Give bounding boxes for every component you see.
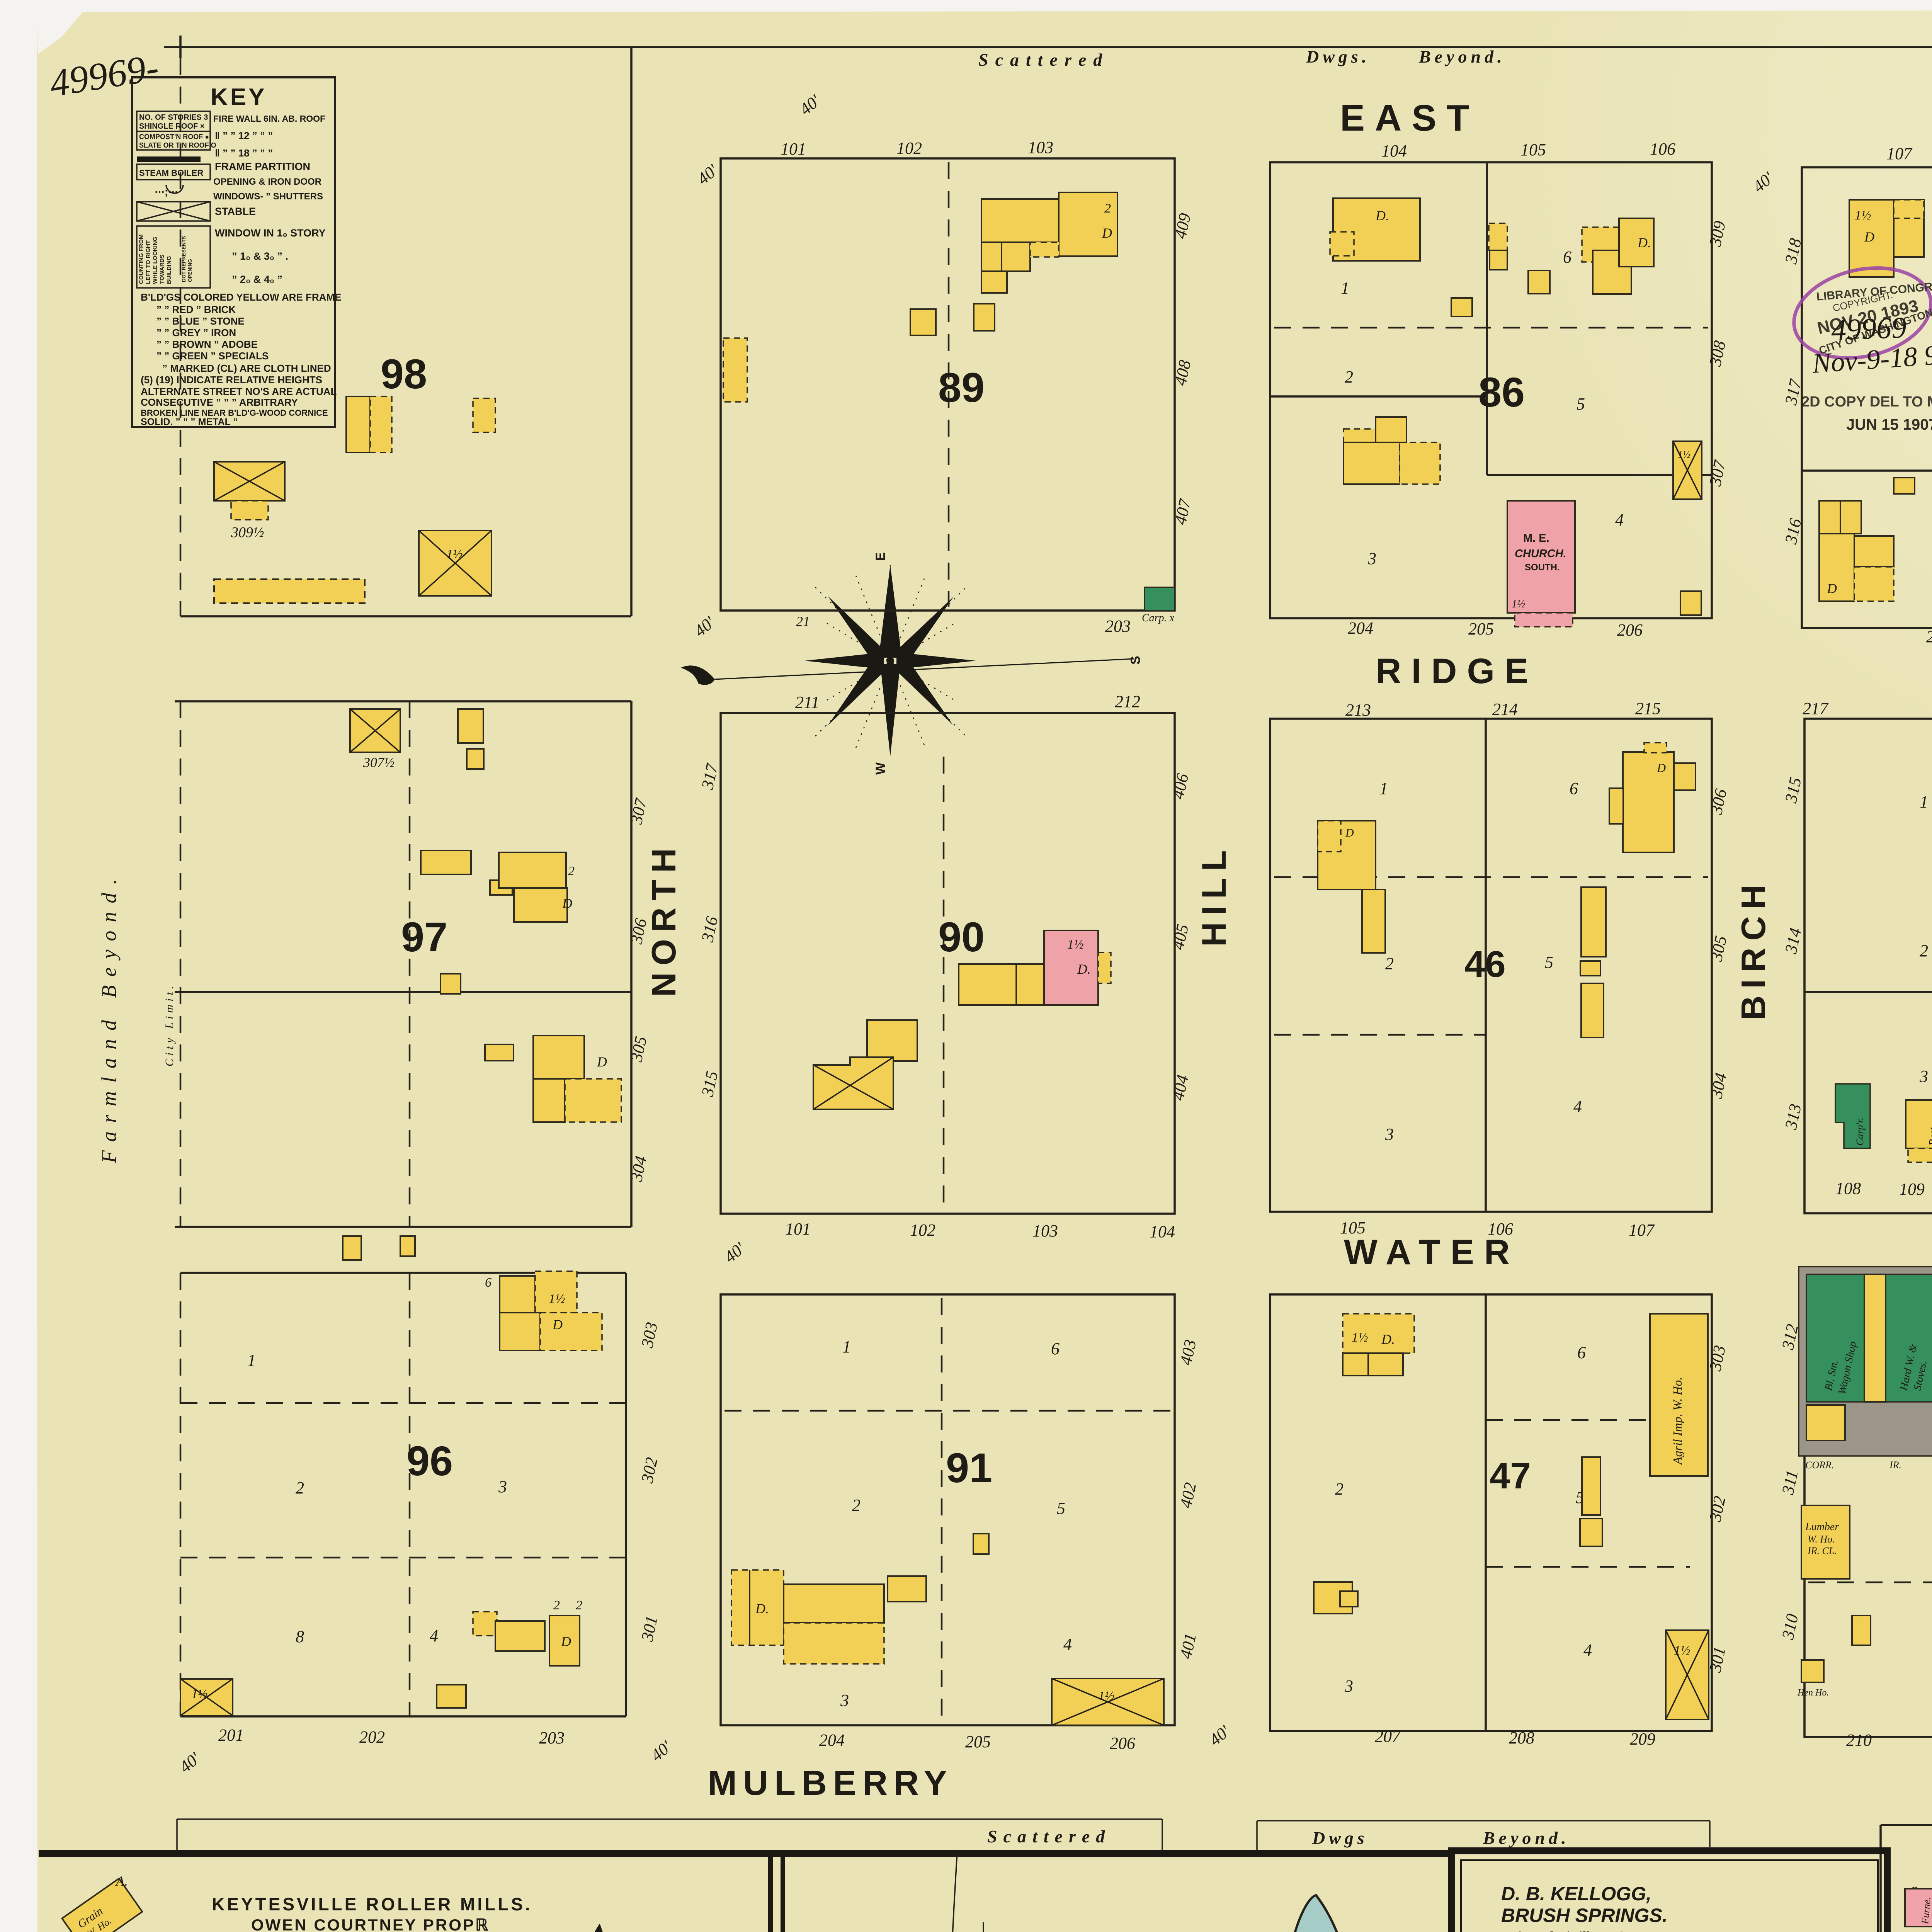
svg-text:CORR.: CORR. <box>1805 1459 1834 1471</box>
svg-text:D: D <box>1345 827 1354 839</box>
svg-text:104: 104 <box>1150 1222 1175 1241</box>
svg-text:1½: 1½ <box>1067 937 1084 952</box>
svg-text:E: E <box>873 552 888 561</box>
svg-text:2: 2 <box>852 1496 861 1515</box>
svg-text:” ” GREY ” IRON: ” ” GREY ” IRON <box>156 327 236 338</box>
svg-text:3: 3 <box>1367 549 1376 568</box>
svg-text:1½: 1½ <box>446 547 463 561</box>
svg-text:D. B. KELLOGG,: D. B. KELLOGG, <box>1501 1883 1651 1905</box>
svg-text:Lumber: Lumber <box>1805 1521 1839 1533</box>
svg-text:206: 206 <box>1110 1734 1135 1753</box>
svg-text:OPENING: OPENING <box>187 259 193 282</box>
svg-text:” ” RED ” BRIC: ” ” RED ” BRICK <box>156 304 236 315</box>
svg-text:IR. CL.: IR. CL. <box>1807 1545 1837 1556</box>
svg-text:” 2₀ & 4₀ ”: ” 2₀ & 4₀ ” <box>232 274 282 285</box>
svg-text:102: 102 <box>910 1221 935 1240</box>
svg-text:107: 107 <box>1629 1221 1655 1240</box>
svg-text:Dwgs: Dwgs <box>1312 1828 1368 1848</box>
svg-text:CHURCH.: CHURCH. <box>1515 548 1566 560</box>
svg-text:Hen Ho.: Hen Ho. <box>1797 1688 1829 1698</box>
svg-text:5: 5 <box>1545 953 1553 972</box>
svg-text:SHINGLE ROOF ×: SHINGLE ROOF × <box>139 122 204 131</box>
svg-text:207: 207 <box>1375 1727 1401 1746</box>
svg-text:2: 2 <box>553 1598 560 1612</box>
svg-text:D.: D. <box>1077 961 1091 977</box>
svg-text:201: 201 <box>218 1726 244 1745</box>
svg-text:2: 2 <box>1385 954 1394 973</box>
svg-text:98: 98 <box>381 350 427 397</box>
svg-text:106: 106 <box>1488 1219 1513 1238</box>
svg-text:205: 205 <box>965 1732 991 1751</box>
svg-text:3: 3 <box>840 1691 849 1710</box>
svg-text:91: 91 <box>946 1444 992 1491</box>
svg-text:BUILDING: BUILDING <box>166 256 172 284</box>
svg-text:215: 215 <box>1635 699 1661 718</box>
svg-text:2: 2 <box>1104 201 1111 216</box>
svg-text:SOLID. ” ” ” META: SOLID. ” ” ” METAL ” <box>141 417 238 427</box>
svg-text:MULBERRY: MULBERRY <box>708 1764 953 1803</box>
svg-text:Scattered: Scattered <box>978 50 1109 70</box>
svg-text:D: D <box>562 896 572 911</box>
svg-text:RIDGE: RIDGE <box>1376 651 1538 691</box>
svg-text:” MARKED (CL) ARE CLOTH LINED: ” MARKED (CL) ARE CLOTH LINED <box>162 362 331 374</box>
svg-text:Beyond.: Beyond. <box>1483 1828 1570 1848</box>
svg-text:2: 2 <box>1920 941 1928 960</box>
svg-text:Farmland Beyond.: Farmland Beyond. <box>97 871 121 1163</box>
svg-text:NO. OF STORIES 3: NO. OF STORIES 3 <box>139 113 208 122</box>
svg-text:21: 21 <box>796 614 810 629</box>
svg-text:BIRCH: BIRCH <box>1734 878 1772 1020</box>
svg-text:105: 105 <box>1520 140 1546 159</box>
svg-text:HILL: HILL <box>1195 843 1233 947</box>
svg-text:Beyond.: Beyond. <box>1418 47 1506 66</box>
svg-text:SLATE OR TIN ROOF O: SLATE OR TIN ROOF O <box>139 141 216 149</box>
svg-text:Agril Imp. W. Ho.: Agril Imp. W. Ho. <box>1670 1377 1684 1465</box>
svg-text:1½: 1½ <box>1352 1330 1368 1345</box>
svg-text:WINDOW IN 1₀ STORY: WINDOW IN 1₀ STORY <box>215 227 326 239</box>
svg-text:D: D <box>1102 225 1112 241</box>
svg-text:101: 101 <box>785 1219 811 1238</box>
svg-text:104: 104 <box>1381 141 1407 160</box>
svg-text:4: 4 <box>430 1626 438 1645</box>
svg-text:96: 96 <box>406 1437 453 1484</box>
svg-text:WINDOWS- ” SHUTTERS: WINDOWS- ” SHUTTERS <box>213 191 323 202</box>
svg-text:1: 1 <box>1341 279 1349 298</box>
svg-text:WATER: WATER <box>1344 1233 1520 1272</box>
svg-text:M. E.: M. E. <box>1523 532 1549 544</box>
svg-text:‖ ” ” 18 ” ” ”: ‖ ” ” 18 ” ” ” <box>215 147 273 159</box>
svg-text:1½: 1½ <box>1678 449 1690 460</box>
svg-text:DOT REPRESENTS: DOT REPRESENTS <box>181 236 187 282</box>
svg-text:‖ ” ” 12 ” ” ”: ‖ ” ” 12 ” ” ” <box>215 130 273 141</box>
svg-text:CONSECUTIVE ” ” ” ARBIT: CONSECUTIVE ” ” ” ARBITRARY <box>141 396 298 408</box>
svg-text:5: 5 <box>1057 1499 1065 1518</box>
svg-text:3: 3 <box>1919 1067 1928 1086</box>
svg-text:D: D <box>1656 761 1666 775</box>
svg-text:OPENING & IRON DOOR: OPENING & IRON DOOR <box>213 177 321 187</box>
svg-text:Rest.: Rest. <box>1927 1124 1932 1146</box>
svg-text:TOWARDS: TOWARDS <box>159 255 165 284</box>
svg-text:107: 107 <box>1886 144 1913 163</box>
svg-text:COUNTING FROM: COUNTING FROM <box>138 235 145 284</box>
svg-text:BRUSH SPRINGS.: BRUSH SPRINGS. <box>1501 1905 1668 1926</box>
svg-text:(5) (19) INDICATE RELATIVE HEI: (5) (19) INDICATE RELATIVE HEIGHTS <box>141 374 322 386</box>
svg-text:214: 214 <box>1492 700 1518 719</box>
svg-text:W. Ho.: W. Ho. <box>1808 1534 1835 1545</box>
svg-text:1½: 1½ <box>191 1687 208 1701</box>
svg-text:” ” BROWN ” ADOBE: ” ” BROWN ” ADOBE <box>156 338 258 350</box>
svg-text:D.: D. <box>1637 235 1651 250</box>
svg-text:OWEN COURTNEY PROPℝ: OWEN COURTNEY PROPℝ <box>251 1916 490 1932</box>
svg-text:209: 209 <box>1630 1730 1655 1748</box>
svg-text:Scattered: Scattered <box>987 1827 1111 1846</box>
svg-text:46: 46 <box>1464 944 1506 985</box>
svg-text:86: 86 <box>1478 369 1525 415</box>
svg-text:D: D <box>561 1634 571 1649</box>
svg-text:109: 109 <box>1899 1180 1925 1199</box>
svg-text:207: 207 <box>1926 627 1932 646</box>
svg-text:S: S <box>1128 656 1143 665</box>
svg-text:5: 5 <box>1577 395 1585 413</box>
svg-text:3: 3 <box>1344 1677 1353 1696</box>
svg-text:⋯;⋯: ⋯;⋯ <box>155 186 178 197</box>
svg-text:” ” BLUE ” STON: ” ” BLUE ” STONE <box>156 315 245 327</box>
svg-text:212: 212 <box>1115 692 1140 711</box>
svg-text:208: 208 <box>1509 1728 1534 1747</box>
svg-text:204: 204 <box>819 1731 845 1750</box>
svg-text:89: 89 <box>938 364 985 411</box>
svg-text:4: 4 <box>1583 1641 1592 1660</box>
svg-text:EAST: EAST <box>1340 97 1479 139</box>
svg-text:204: 204 <box>1348 619 1373 638</box>
svg-text:D.: D. <box>1375 208 1389 223</box>
svg-text:202: 202 <box>359 1728 385 1747</box>
svg-text:206: 206 <box>1617 621 1643 639</box>
svg-text:SOUTH.: SOUTH. <box>1525 562 1560 573</box>
svg-text:D: D <box>1864 229 1874 245</box>
svg-text:6: 6 <box>1570 779 1578 798</box>
svg-text:City Limit.: City Limit. <box>163 983 176 1066</box>
svg-text:D: D <box>597 1054 607 1070</box>
svg-text:6: 6 <box>1577 1343 1586 1362</box>
svg-text:3: 3 <box>498 1477 507 1496</box>
svg-text:W: W <box>873 762 888 775</box>
svg-text:47: 47 <box>1490 1455 1531 1497</box>
svg-text:6: 6 <box>1563 248 1571 267</box>
svg-text:KEY: KEY <box>211 84 267 111</box>
svg-text:3: 3 <box>1385 1125 1394 1144</box>
svg-text:” ” GREEN ” SPECIAL: ” ” GREEN ” SPECIALS <box>156 350 269 362</box>
svg-text:IR.: IR. <box>1889 1459 1901 1471</box>
svg-text:ALTERNATE STREET NO'S ARE ACTU: ALTERNATE STREET NO'S ARE ACTUAL <box>141 386 337 397</box>
svg-text:Carp'r.: Carp'r. <box>1854 1117 1866 1146</box>
svg-text:D.: D. <box>755 1601 769 1616</box>
svg-text:2: 2 <box>1345 367 1353 386</box>
svg-text:D: D <box>1827 581 1837 596</box>
svg-text:205: 205 <box>1468 619 1494 638</box>
svg-text:307½: 307½ <box>363 755 395 770</box>
svg-text:49969: 49969 <box>1831 310 1907 347</box>
svg-text:1½: 1½ <box>1674 1643 1690 1658</box>
svg-text:4: 4 <box>1063 1635 1072 1654</box>
svg-text:1½: 1½ <box>1098 1689 1115 1703</box>
svg-text:Dwgs.: Dwgs. <box>1306 47 1370 66</box>
svg-text:106: 106 <box>1650 139 1675 158</box>
svg-text:4: 4 <box>1573 1097 1582 1116</box>
svg-text:101: 101 <box>781 139 806 158</box>
svg-text:” 1₀ & 3₀ ” .: ” 1₀ & 3₀ ” . <box>232 250 288 262</box>
svg-text:90: 90 <box>938 913 985 960</box>
svg-text:KEYTESVILLE ROLLER MILLS.: KEYTESVILLE ROLLER MILLS. <box>212 1894 532 1914</box>
svg-text:108: 108 <box>1835 1179 1861 1198</box>
svg-text:105: 105 <box>1340 1218 1366 1237</box>
svg-text:103: 103 <box>1032 1221 1058 1240</box>
svg-text:Carp. x: Carp. x <box>1142 612 1175 624</box>
svg-text:217: 217 <box>1803 699 1829 718</box>
svg-text:D.: D. <box>1381 1332 1395 1347</box>
svg-text:2: 2 <box>568 864 575 878</box>
svg-text:4: 4 <box>1615 510 1624 529</box>
svg-text:210: 210 <box>1846 1731 1872 1750</box>
svg-text:211: 211 <box>795 693 820 712</box>
svg-text:203: 203 <box>1105 617 1131 636</box>
svg-text:FRAME PARTITION: FRAME PARTITION <box>215 161 310 172</box>
svg-text:102: 102 <box>896 139 922 158</box>
svg-text:JUN 15 1907: JUN 15 1907 <box>1846 416 1932 433</box>
svg-text:COMPOST'N ROOF ●: COMPOST'N ROOF ● <box>139 133 209 141</box>
svg-text:Furne.: Furne. <box>1919 1896 1932 1925</box>
svg-text:203: 203 <box>539 1728 565 1747</box>
svg-text:1½: 1½ <box>1855 208 1871 223</box>
svg-text:Registered Distillery Nº 77.: Registered Distillery Nº 77. <box>1496 1929 1642 1932</box>
svg-text:2: 2 <box>576 1598 582 1612</box>
svg-text:NORTH: NORTH <box>645 841 683 997</box>
svg-text:1: 1 <box>1920 793 1928 811</box>
svg-text:97: 97 <box>401 913 447 960</box>
svg-text:A.: A. <box>115 1873 128 1889</box>
svg-text:FIRE WALL 6IN. AB. ROOF: FIRE WALL 6IN. AB. ROOF <box>213 114 325 124</box>
svg-text:6: 6 <box>1051 1339 1060 1358</box>
svg-text:LEFT TO RIGHT: LEFT TO RIGHT <box>145 240 151 284</box>
svg-text:6: 6 <box>485 1276 492 1290</box>
svg-text:2: 2 <box>1335 1480 1344 1498</box>
svg-text:1: 1 <box>247 1351 256 1370</box>
svg-text:WHILE LOOKING: WHILE LOOKING <box>152 237 158 284</box>
svg-text:309½: 309½ <box>231 524 264 541</box>
svg-text:STABLE: STABLE <box>215 206 256 217</box>
svg-text:2: 2 <box>296 1478 304 1497</box>
svg-text:8: 8 <box>296 1627 304 1646</box>
svg-text:B'LD'GS COLORED YELLOW ARE FRA: B'LD'GS COLORED YELLOW ARE FRAME <box>141 291 341 303</box>
svg-text:213: 213 <box>1345 701 1371 719</box>
svg-text:1½: 1½ <box>549 1292 565 1306</box>
svg-text:1: 1 <box>842 1337 851 1356</box>
svg-text:2D COPY DEL TO MAP DIV.: 2D COPY DEL TO MAP DIV. <box>1801 394 1932 410</box>
svg-text:STEAM BOILER: STEAM BOILER <box>139 168 203 178</box>
svg-text:103: 103 <box>1028 138 1053 157</box>
svg-text:1½: 1½ <box>1512 598 1525 610</box>
svg-text:D: D <box>552 1317 563 1332</box>
svg-text:1: 1 <box>1379 779 1388 798</box>
